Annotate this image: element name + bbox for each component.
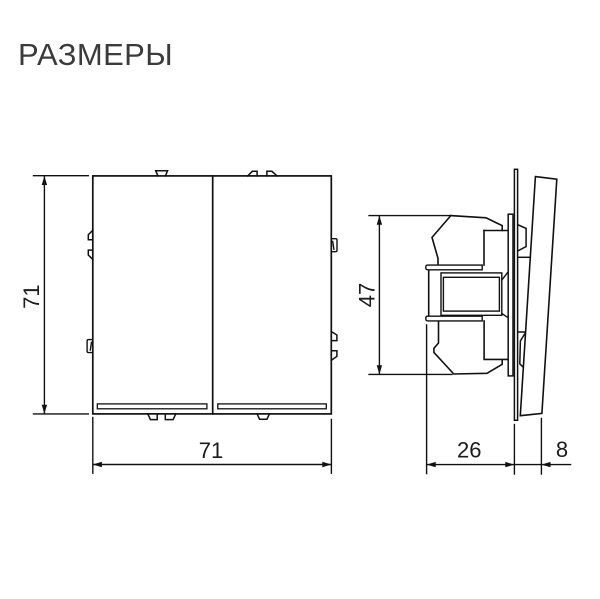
svg-text:8: 8	[556, 437, 568, 462]
svg-text:47: 47	[354, 283, 379, 307]
svg-text:26: 26	[457, 438, 481, 463]
svg-text:71: 71	[19, 284, 44, 308]
svg-text:71: 71	[199, 438, 223, 463]
